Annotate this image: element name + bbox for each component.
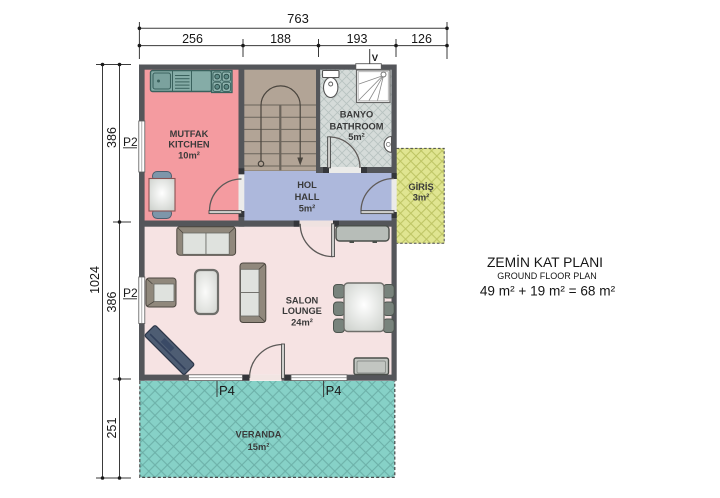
svg-text:126: 126 <box>411 32 432 46</box>
svg-text:HALL: HALL <box>295 192 320 202</box>
svg-text:49 m² + 19 m² = 68 m²: 49 m² + 19 m² = 68 m² <box>480 284 616 299</box>
svg-text:763: 763 <box>287 11 309 26</box>
svg-text:P4: P4 <box>219 383 235 398</box>
svg-text:15m²: 15m² <box>248 442 270 452</box>
svg-text:P2: P2 <box>123 135 138 149</box>
svg-text:GROUND FLOOR PLAN: GROUND FLOOR PLAN <box>497 271 597 281</box>
svg-text:P2: P2 <box>123 286 138 300</box>
svg-text:386: 386 <box>105 127 119 148</box>
svg-text:188: 188 <box>270 32 291 46</box>
svg-text:3m²: 3m² <box>413 193 430 203</box>
svg-text:MUTFAK: MUTFAK <box>170 129 209 139</box>
svg-text:24m²: 24m² <box>291 318 313 328</box>
svg-text:BANYO: BANYO <box>340 110 374 120</box>
svg-text:ZEMİN KAT PLANI: ZEMİN KAT PLANI <box>487 253 603 270</box>
svg-text:251: 251 <box>105 418 119 439</box>
svg-text:193: 193 <box>347 32 368 46</box>
svg-text:5m²: 5m² <box>348 132 365 142</box>
svg-text:1024: 1024 <box>88 266 102 294</box>
svg-text:GİRİŞ: GİRİŞ <box>408 182 433 192</box>
svg-text:VERANDA: VERANDA <box>236 430 282 440</box>
svg-text:V: V <box>372 53 379 64</box>
svg-text:P4: P4 <box>326 383 342 398</box>
svg-text:HOL: HOL <box>297 180 317 190</box>
svg-text:KITCHEN: KITCHEN <box>168 140 210 150</box>
svg-text:10m²: 10m² <box>178 151 200 161</box>
svg-text:386: 386 <box>105 292 119 313</box>
svg-text:5m²: 5m² <box>299 204 316 214</box>
svg-text:LOUNGE: LOUNGE <box>282 306 322 316</box>
svg-text:SALON: SALON <box>286 296 319 306</box>
svg-text:256: 256 <box>182 32 203 46</box>
svg-text:BATHROOM: BATHROOM <box>329 122 383 132</box>
